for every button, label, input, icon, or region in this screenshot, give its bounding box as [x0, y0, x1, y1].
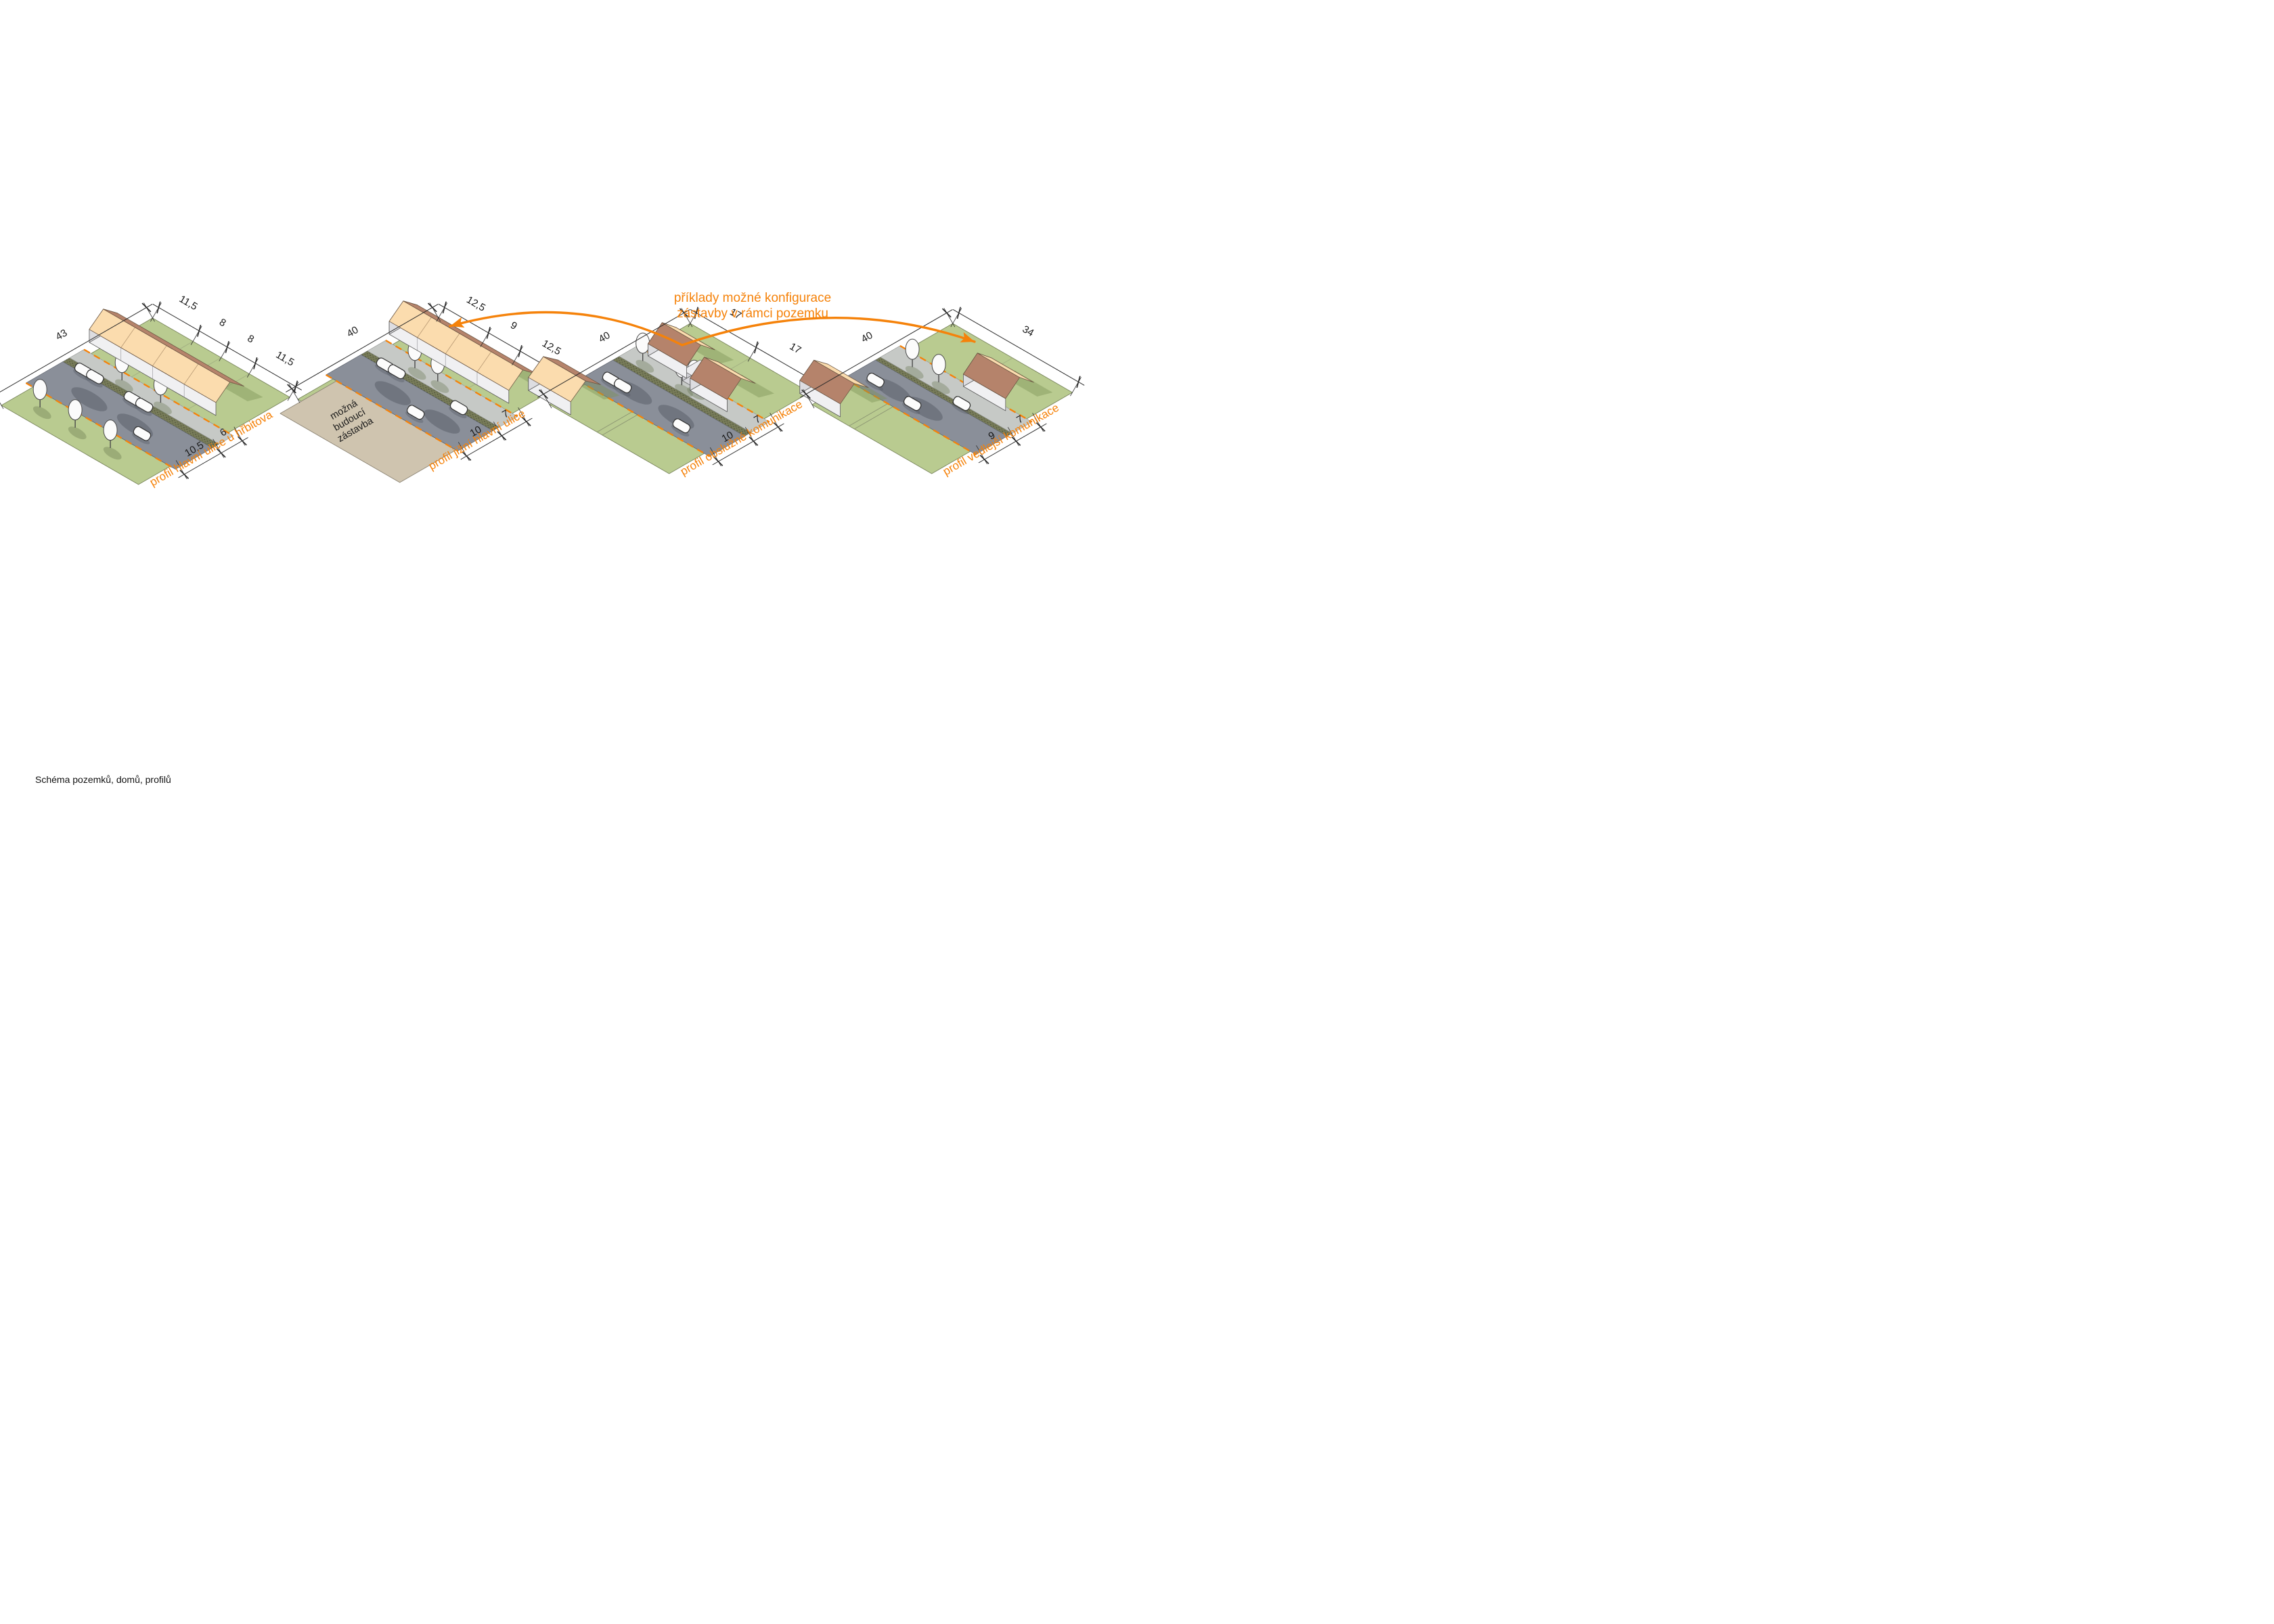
scene-1: 4311,58811,510,56profil hlavní ulice u h… [0, 293, 302, 489]
dim-label: 12,5 [464, 294, 487, 314]
scenes-layer: 4311,58811,510,56profil hlavní ulice u h… [0, 293, 1084, 489]
dim-label: 8 [217, 317, 228, 330]
dim-label: 40 [345, 324, 361, 340]
dim-label: 40 [597, 330, 612, 345]
dim-label: 11,5 [177, 293, 200, 313]
dim-label: 17 [788, 340, 803, 356]
scene-2: 4012,5912,5107profil jižní hlavní ulicem… [280, 294, 570, 482]
annotation-line1: příklady možné konfigurace [674, 291, 831, 305]
dim-label: 11,5 [274, 349, 296, 369]
dim-label: 8 [245, 333, 256, 346]
diagram-page: 4311,58811,510,56profil hlavní ulice u h… [0, 0, 1137, 812]
dim-label: 34 [1021, 323, 1036, 339]
diagram-canvas: 4311,58811,510,56profil hlavní ulice u h… [0, 0, 1137, 812]
scene-3: 401717107profil obslužné komunikace [529, 306, 822, 478]
dim-label: 40 [860, 330, 875, 345]
page-caption: Schéma pozemků, domů, profilů [35, 774, 171, 785]
dim-label: 9 [508, 319, 519, 332]
dim-label: 12,5 [540, 338, 563, 357]
dim-label: 43 [53, 327, 69, 342]
